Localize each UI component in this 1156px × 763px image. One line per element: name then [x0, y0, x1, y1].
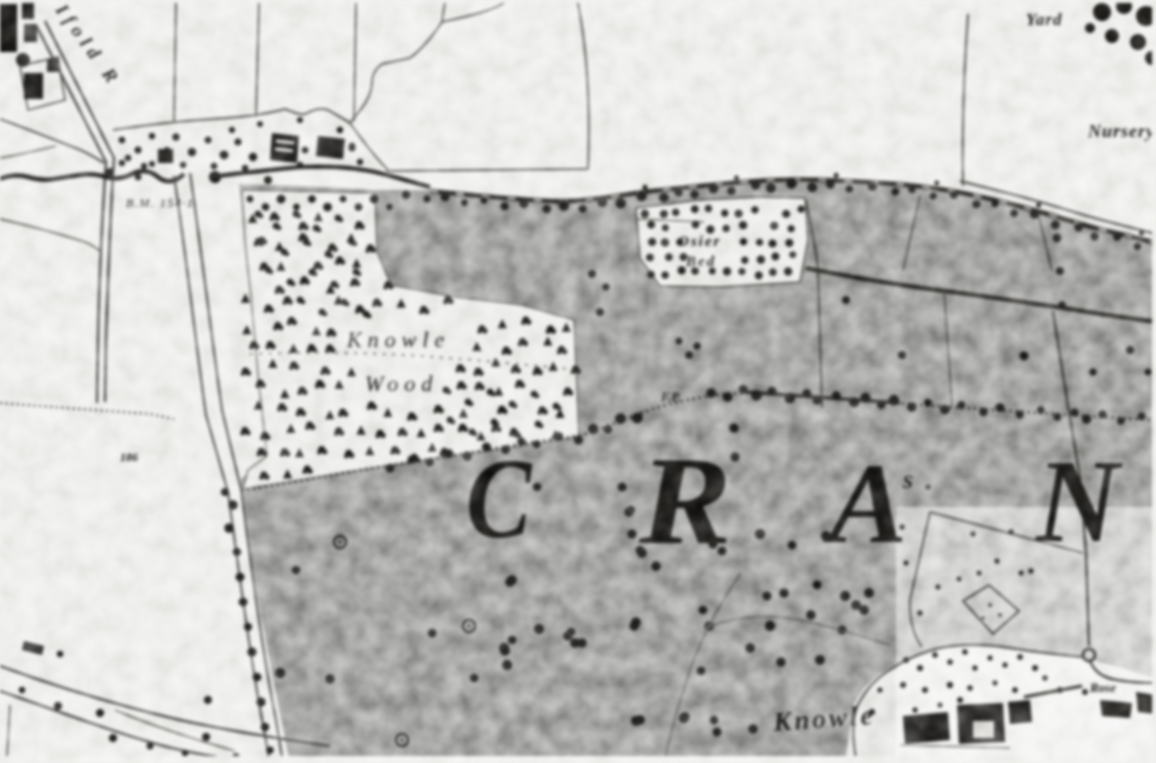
svg-text:B.M. 154·1: B.M. 154·1 [126, 196, 194, 210]
svg-text:Wood: Wood [365, 371, 438, 396]
svg-text:Bed: Bed [685, 254, 716, 270]
svg-text:C: C [466, 435, 532, 562]
svg-text:Yard: Yard [1026, 10, 1062, 29]
svg-text:R: R [638, 431, 732, 571]
svg-text:186: 186 [120, 450, 138, 464]
svg-text:Osier: Osier [678, 234, 721, 250]
svg-text:Nursery: Nursery [1087, 121, 1155, 141]
svg-text:Knowle: Knowle [346, 327, 450, 352]
svg-text:s: s [902, 465, 913, 494]
svg-text:F.P.: F.P. [660, 389, 681, 404]
svg-text:A: A [823, 441, 907, 568]
svg-text:N: N [1034, 436, 1122, 567]
svg-text:Rose: Rose [1089, 680, 1116, 695]
